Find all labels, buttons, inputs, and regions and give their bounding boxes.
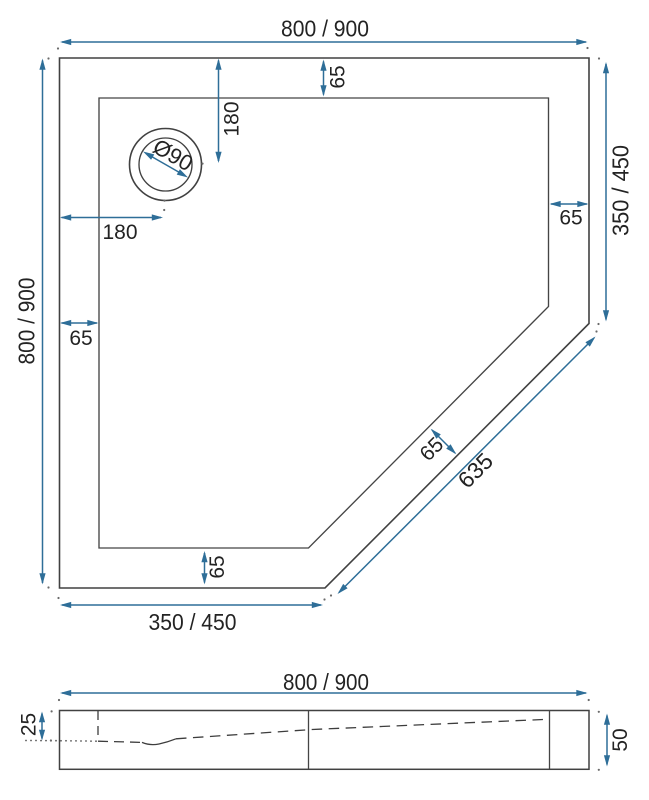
svg-text:800 / 900: 800 / 900 [14,278,40,365]
svg-text:350 / 450: 350 / 450 [149,609,237,635]
svg-text:65: 65 [416,433,449,466]
svg-text:65: 65 [559,207,582,230]
svg-text:350 / 450: 350 / 450 [608,145,634,236]
svg-text:800 / 900: 800 / 900 [281,16,369,42]
svg-text:65: 65 [327,65,350,88]
svg-text:65: 65 [206,555,229,578]
svg-text:65: 65 [69,327,92,350]
svg-text:180: 180 [102,221,137,244]
svg-text:180: 180 [221,101,244,136]
svg-text:50: 50 [609,728,632,751]
svg-text:800 / 900: 800 / 900 [283,669,369,695]
svg-text:25: 25 [18,713,41,736]
